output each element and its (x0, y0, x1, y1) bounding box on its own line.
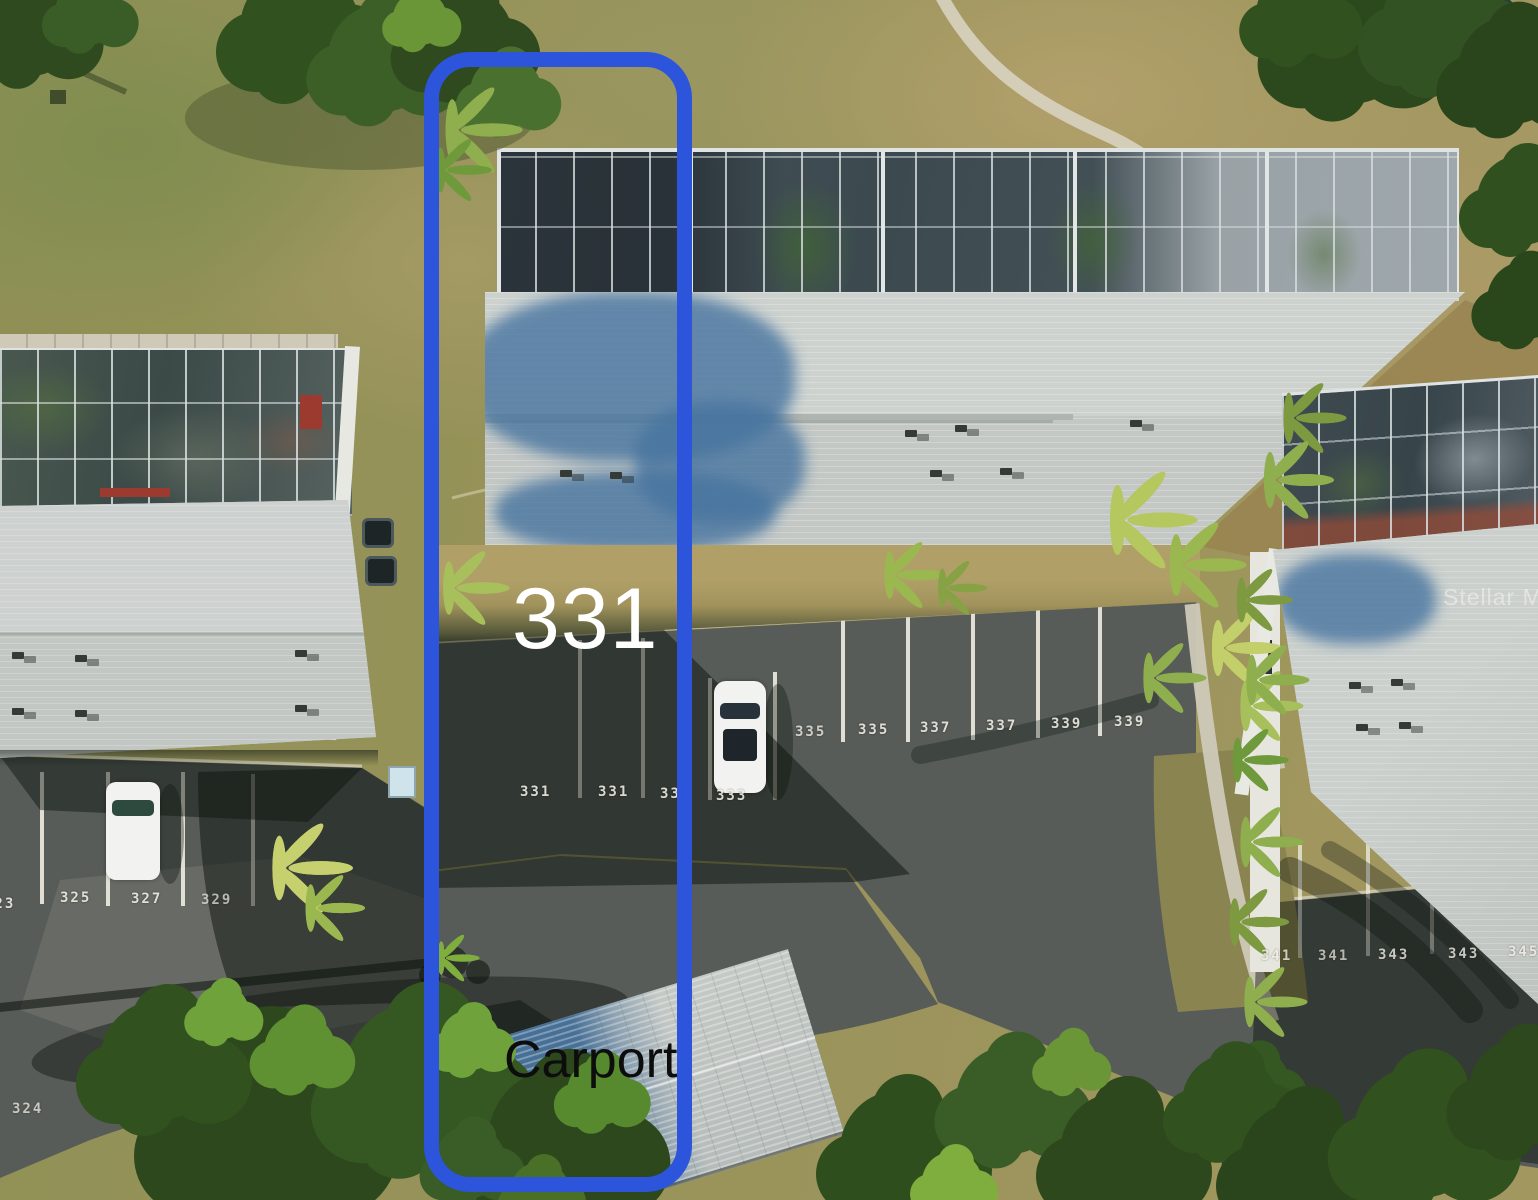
parking-spot-number: 345 (1508, 944, 1538, 960)
parking-spot-number: 323 (0, 896, 15, 912)
vegetation-layer (0, 0, 1538, 1200)
parking-spot-number: 325 (60, 890, 91, 906)
parking-spot-number: 335 (795, 724, 826, 740)
parking-spot-number: 339 (1114, 714, 1145, 730)
parking-spot-number: 341 (1261, 948, 1292, 964)
mls-watermark: Stellar MLS (1443, 584, 1538, 611)
carport-label: Carport (504, 1030, 677, 1090)
parking-spot-number: 343 (1448, 946, 1479, 962)
unit-number-label: 331 (512, 570, 659, 669)
parking-spot-number: 327 (131, 891, 162, 907)
parking-spot-number: 337 (920, 720, 951, 736)
parking-spot-number: 341 (1318, 948, 1349, 964)
parking-spot-number: 335 (858, 722, 889, 738)
aerial-photo: 331 331 333 333 335 335 337 337 339 339 … (0, 0, 1538, 1200)
parking-spot-number: 337 (986, 718, 1017, 734)
parking-spot-number: 339 (1051, 716, 1082, 732)
parking-spot-number: 324 (12, 1101, 43, 1117)
parking-spot-number: 329 (201, 892, 232, 908)
parking-spot-number: 343 (1378, 947, 1409, 963)
parking-spot-number: 333 (716, 788, 747, 804)
